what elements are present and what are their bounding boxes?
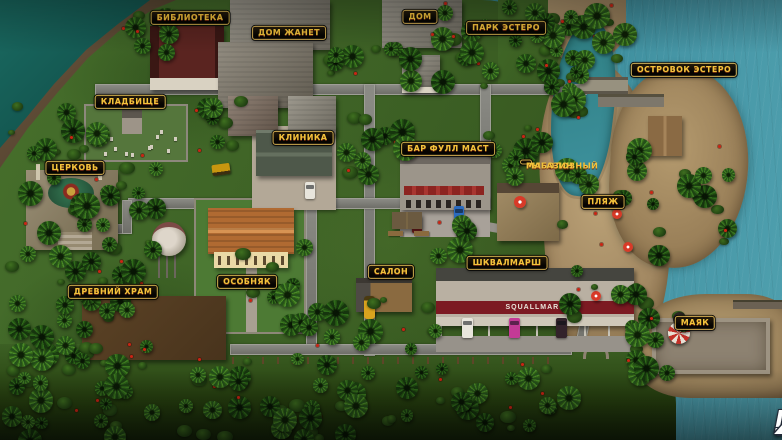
bar-awning: [404, 186, 484, 195]
bush: [119, 162, 135, 175]
gravestone: [148, 146, 151, 150]
bush: [79, 145, 89, 153]
palm-tree: [291, 353, 303, 365]
palm-tree: [324, 329, 340, 345]
palm-tree: [74, 193, 100, 219]
palm-tree: [353, 334, 370, 351]
location-label-fishing-shop[interactable]: РЫБОЛОВНЫЙМАГАЗИН: [520, 160, 532, 165]
palm-tree: [30, 347, 54, 371]
bush: [226, 140, 239, 150]
bush: [57, 279, 65, 285]
palm-tree: [451, 392, 471, 412]
palm-tree: [9, 343, 33, 367]
red-flower: [509, 406, 512, 409]
red-flower: [536, 128, 539, 131]
palm-tree: [559, 293, 581, 315]
bush: [234, 96, 248, 107]
palm-tree: [626, 149, 643, 166]
palm-tree: [659, 365, 675, 381]
bush: [89, 343, 103, 354]
palm-tree: [384, 42, 398, 56]
palm-tree: [531, 132, 553, 154]
palm-tree: [299, 406, 323, 430]
palm-tree: [354, 152, 371, 169]
palm-tree: [647, 332, 664, 349]
red-flower: [545, 64, 548, 67]
location-label-clinic[interactable]: КЛИНИКА: [273, 131, 334, 145]
palm-tree: [611, 285, 630, 304]
palm-tree: [502, 0, 517, 15]
red-flower: [522, 135, 525, 138]
red-flower: [237, 396, 240, 399]
location-label-full-mast-bar[interactable]: БАР ФУЛЛ МАСТ: [401, 142, 495, 156]
palm-tree: [18, 372, 30, 384]
palm-tree: [401, 409, 413, 421]
location-label-ancient-temple[interactable]: ДРЕВНИЙ ХРАМ: [68, 285, 158, 299]
bush: [243, 358, 251, 365]
palm-tree: [8, 318, 30, 340]
watermark-x: X: [777, 390, 782, 438]
bush: [57, 397, 72, 409]
location-label-estero-islet[interactable]: ОСТРОВОК ЭСТЕРО: [631, 63, 737, 77]
islet-shack: [648, 116, 682, 156]
gravestone: [110, 137, 113, 141]
palm-tree: [57, 313, 72, 328]
palm-tree: [482, 62, 499, 79]
palm-tree: [335, 424, 356, 440]
palm-tree: [300, 319, 317, 336]
palm-tree: [722, 168, 736, 182]
palm-tree: [2, 406, 22, 426]
palm-tree: [613, 23, 636, 46]
bush: [387, 415, 396, 422]
bush: [367, 298, 381, 309]
white-car: [305, 182, 315, 199]
red-flower: [130, 355, 133, 358]
bush: [266, 262, 279, 273]
red-flower: [577, 116, 580, 119]
bush: [719, 238, 728, 245]
bush: [524, 125, 531, 131]
palm-tree: [18, 181, 43, 206]
palm-tree: [158, 44, 175, 61]
red-flower: [198, 149, 201, 152]
pink-car: [509, 318, 520, 338]
palm-tree: [429, 324, 442, 337]
palm-tree: [718, 219, 737, 238]
palm-tree: [9, 295, 26, 312]
gravestone: [160, 130, 163, 134]
bush: [12, 102, 23, 111]
location-label-salon[interactable]: САЛОН: [368, 265, 414, 279]
location-label-house[interactable]: ДОМ: [402, 10, 437, 24]
mansion-building: [208, 208, 294, 254]
palm-tree: [204, 98, 223, 117]
palm-tree: [149, 162, 163, 176]
beach-umbrella: [612, 209, 622, 219]
red-flower: [198, 358, 201, 361]
palm-tree: [457, 221, 477, 241]
fence-row: [232, 357, 562, 364]
palm-tree: [323, 300, 349, 326]
beach-umbrella: [623, 242, 633, 252]
gravestone: [104, 152, 107, 156]
red-flower: [143, 348, 146, 351]
palm-tree: [516, 54, 536, 74]
location-label-cemetery[interactable]: КЛАДБИЩЕ: [95, 95, 166, 109]
palm-tree: [35, 417, 47, 429]
palm-tree: [190, 367, 206, 383]
palm-tree: [101, 186, 120, 205]
palm-tree: [210, 135, 224, 149]
palm-tree: [20, 246, 36, 262]
bush: [217, 431, 233, 440]
palm-tree: [296, 239, 312, 255]
fishing-shop-building: [497, 183, 559, 241]
palm-tree: [328, 47, 344, 63]
location-label-library[interactable]: БИБЛИОТЕКА: [151, 11, 230, 25]
palm-tree: [341, 45, 364, 68]
palm-tree: [99, 303, 115, 319]
palm-tree: [140, 340, 153, 353]
bush: [711, 205, 723, 215]
palm-tree: [179, 399, 193, 413]
shop-umbrella: [514, 196, 526, 208]
church-spire: [36, 164, 40, 180]
palm-tree: [209, 366, 230, 387]
palm-tree: [228, 396, 250, 418]
location-label-janet-house[interactable]: ДОМ ЖАНЕТ: [252, 26, 326, 40]
bush: [196, 429, 210, 440]
palm-tree: [570, 66, 582, 78]
palm-tree: [275, 283, 300, 308]
palm-tree: [460, 41, 484, 65]
palm-tree: [125, 17, 146, 38]
white-car: [462, 318, 473, 338]
palm-tree: [104, 374, 128, 398]
palm-tree: [132, 187, 145, 200]
red-flower: [195, 109, 198, 112]
islet-jetty: [598, 94, 664, 107]
palm-tree: [396, 377, 418, 399]
palm-tree: [551, 92, 576, 117]
red-flower: [439, 378, 442, 381]
palm-tree: [431, 27, 454, 50]
squallmart-sign-band: SQUALLMART: [436, 301, 634, 314]
red-flower: [75, 409, 78, 412]
palm-tree: [313, 378, 328, 393]
palm-tree: [77, 217, 92, 232]
palm-tree: [437, 5, 453, 21]
palm-tree: [648, 245, 669, 266]
gravestone: [174, 137, 177, 141]
squallmart-sign: SQUALLMART: [506, 304, 565, 311]
palm-tree: [203, 401, 221, 419]
bush: [342, 166, 358, 179]
palm-tree: [82, 252, 101, 271]
palm-tree: [317, 355, 337, 375]
bar-building: [400, 152, 490, 210]
location-label-lighthouse[interactable]: МАЯК: [675, 316, 715, 330]
red-flower: [347, 169, 350, 172]
location-label-squallmart[interactable]: ШКВАЛМАРШ: [467, 256, 548, 270]
palm-tree: [129, 201, 149, 221]
palm-tree: [344, 394, 368, 418]
red-flower: [438, 221, 441, 224]
picnic-table: [388, 231, 403, 236]
palm-tree: [584, 3, 610, 29]
bush: [436, 397, 445, 404]
palm-tree: [146, 198, 167, 219]
park-pavilion: [392, 212, 422, 229]
red-flower: [120, 260, 123, 263]
location-label-estero-park[interactable]: ПАРК ЭСТЕРО: [466, 21, 546, 35]
palm-tree: [476, 413, 495, 432]
gravestone: [156, 135, 159, 139]
palm-tree: [144, 404, 160, 420]
bush: [611, 54, 623, 64]
palm-tree: [21, 415, 35, 429]
bush: [557, 220, 567, 228]
palm-tree: [75, 353, 90, 368]
picnic-table: [414, 231, 429, 236]
palm-tree: [100, 398, 112, 410]
palm-tree: [273, 408, 297, 432]
game-map: SQUALLMART БИБЛИОТЕКАДОМ ЖАНЕТДОМПАРК ЭС…: [0, 0, 782, 440]
palm-tree: [61, 119, 85, 143]
bush: [359, 114, 373, 125]
gravestone: [114, 147, 117, 151]
red-flower: [724, 229, 727, 232]
location-label-beach[interactable]: ПЛЯЖ: [582, 195, 625, 209]
bush: [5, 261, 19, 272]
palm-tree: [592, 31, 615, 54]
lighthouse-dock: [733, 300, 782, 309]
bar-windows: [406, 200, 482, 208]
palm-tree: [523, 419, 536, 432]
red-flower: [141, 154, 144, 157]
dark-car: [556, 318, 567, 338]
palm-tree: [647, 198, 659, 210]
palm-tree: [430, 248, 446, 264]
gravestone: [167, 149, 170, 153]
palm-tree: [33, 375, 48, 390]
gravestone: [125, 152, 128, 156]
palm-tree: [337, 143, 356, 162]
location-label-church[interactable]: ЦЕРКОВЬ: [45, 161, 104, 175]
palm-tree: [37, 221, 61, 245]
cemetery-chapel: [122, 110, 142, 134]
palm-tree: [144, 241, 162, 259]
palm-tree: [399, 47, 422, 70]
palm-tree: [229, 372, 248, 391]
palm-tree: [29, 388, 54, 413]
red-flower: [444, 2, 447, 5]
bush: [235, 248, 251, 260]
palm-tree: [517, 367, 540, 390]
bush: [653, 227, 666, 237]
beach-umbrella: [591, 291, 601, 301]
palm-tree: [557, 386, 580, 409]
palm-tree: [505, 372, 518, 385]
location-label-mansion[interactable]: ОСОБНЯК: [217, 275, 277, 289]
gravestone: [131, 153, 134, 157]
